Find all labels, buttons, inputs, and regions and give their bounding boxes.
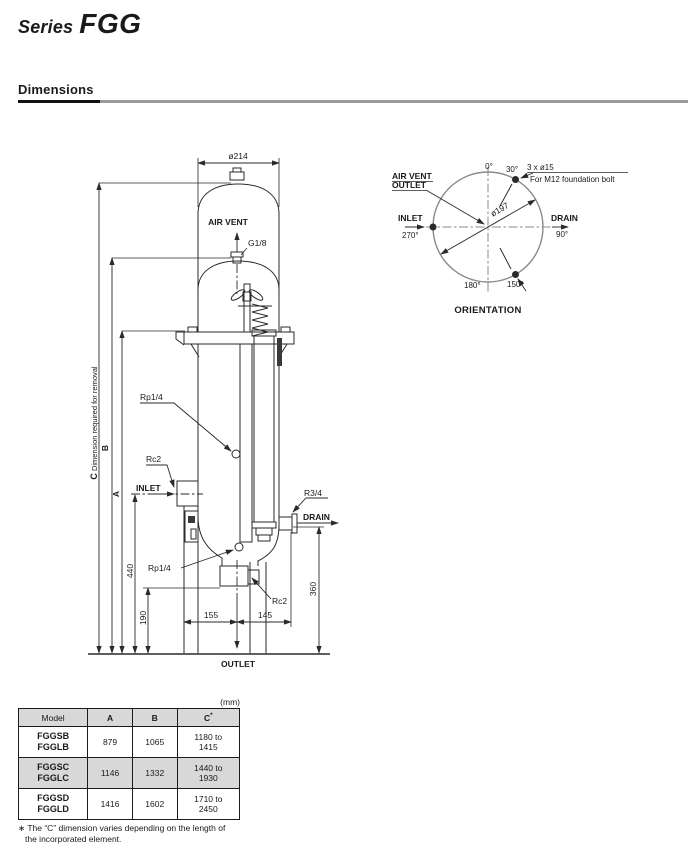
deg0-label: 0° [485,162,493,171]
r34-label: R3/4 [304,488,322,498]
value-c: 1180 to 1415 [177,727,239,758]
bolt-note-label: 3 x ø15 [527,163,554,172]
outlet-label: OUTLET [221,659,256,669]
rc2-inlet-label: Rc2 [146,454,161,464]
value-a: 879 [88,727,133,758]
orientation-inlet-label: INLET [398,213,423,223]
orientation-diagram: ø197 AIR VENT OUTLET 0° 30° 3 x ø15 For … [392,162,628,316]
dim-440-label: 440 [125,564,135,578]
value-a: 1416 [88,789,133,820]
value-b: 1602 [132,789,177,820]
orientation-drain-label: DRAIN [551,213,578,223]
dimensions-table: Model A B C* FGGSB FGGLB 879 1065 1180 t… [18,708,240,820]
air-vent-label: AIR VENT [208,217,248,227]
table-row: FGGSD FGGLD 1416 1602 1710 to 2450 [19,789,240,820]
value-b: 1332 [132,758,177,789]
header-c: C* [177,709,239,727]
model-cell: FGGSD FGGLD [19,789,88,820]
table-row: FGGSC FGGLC 1146 1332 1440 to 1930 [19,758,240,789]
inlet-label: INLET [136,483,161,493]
rp14-lower-label: Rp1/4 [148,563,171,573]
deg90-label: 90° [556,230,568,239]
rc2-outlet-label: Rc2 [272,596,287,606]
value-b: 1065 [132,727,177,758]
header-b: B [132,709,177,727]
dimensions-table-block: (mm) Model A B C* FGGSB FGGLB 879 1065 1… [18,697,240,845]
dim-155-label: 155 [204,610,218,620]
value-c: 1440 to 1930 [177,758,239,789]
vessel-drawing: ø214 AIR VENT G1/8 [88,151,338,669]
header-model: Model [19,709,88,727]
dim-190-label: 190 [138,611,148,625]
value-c: 1710 to 2450 [177,789,239,820]
table-row: FGGSB FGGLB 879 1065 1180 to 1415 [19,727,240,758]
rp14-upper-label: Rp1/4 [140,392,163,402]
dim-145-label: 145 [258,610,272,620]
dim-b-label: B [100,445,110,451]
drain-label: DRAIN [303,512,330,522]
dim-214-label: ø214 [228,151,248,161]
table-header-row: Model A B C* [19,709,240,727]
dim-a-label: A [111,491,121,497]
bolt-note2-label: For M12 foundation bolt [530,175,615,184]
dim-c-label: C Dimension required for removal [89,366,99,480]
deg30-label: 30° [506,165,518,174]
deg150-label: 150° [507,280,524,289]
orientation-caption: ORIENTATION [454,305,521,316]
model-cell: FGGSB FGGLB [19,727,88,758]
deg270-label: 270° [402,231,419,240]
header-a: A [88,709,133,727]
table-unit-label: (mm) [18,697,240,707]
dim-360-label: 360 [308,582,318,596]
table-footnote: ∗ The “C” dimension varies depending on … [18,823,240,845]
value-a: 1146 [88,758,133,789]
deg180-label: 180° [464,281,481,290]
g18-label: G1/8 [248,238,267,248]
model-cell: FGGSC FGGLC [19,758,88,789]
